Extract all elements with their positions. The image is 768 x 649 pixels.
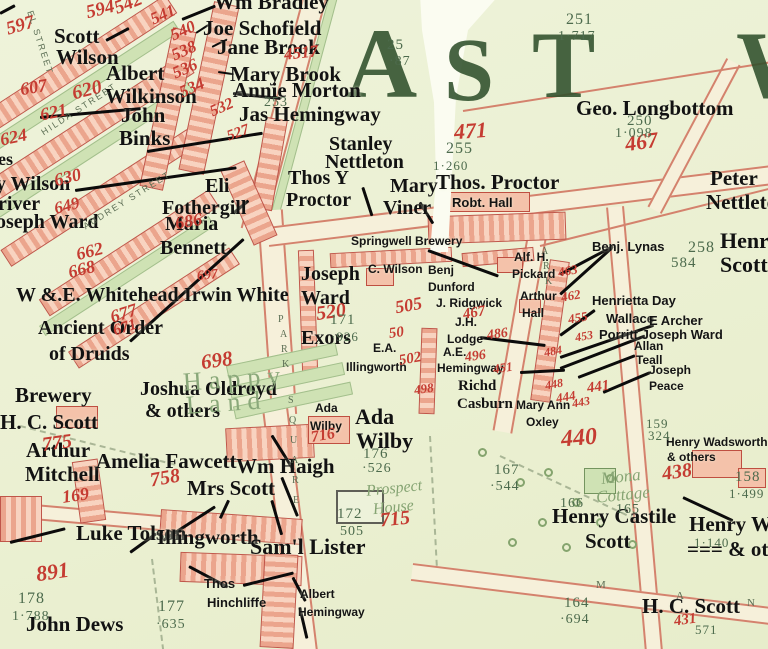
owner-annotation: Wm Haigh: [236, 456, 335, 477]
parcel-number-green: 1·788: [12, 610, 50, 624]
road-name-letter: Q: [289, 416, 296, 426]
parcel-number-green: 177: [158, 599, 185, 615]
owner-annotation: Geo. Longbottom: [576, 98, 734, 119]
road-name-letter: E: [293, 496, 299, 506]
terrace-block: [419, 328, 438, 415]
parcel-number-green: ·635: [156, 618, 186, 632]
parcel-number-green: ·544: [490, 480, 520, 494]
road-name-letter: A: [541, 247, 548, 257]
owner-annotation: es: [0, 150, 13, 168]
parcel-number-red: 607: [19, 76, 49, 98]
owner-annotation: Binks: [119, 128, 170, 149]
owner-annotation-small: Illingworth: [346, 361, 407, 373]
owner-annotation-small: Thos: [204, 577, 235, 590]
owner-annotation-small: C. Wilson: [368, 263, 423, 275]
parcel-number-green: 158: [735, 470, 761, 485]
parcel-number-red: 50: [388, 325, 405, 342]
owner-annotation: Scott: [720, 254, 768, 276]
owner-annotation: Eli: [205, 176, 229, 196]
parcel-number-green: 166: [560, 497, 584, 511]
road-name-letter: M: [596, 580, 606, 591]
parcel-number-red: 775: [41, 431, 73, 455]
parcel-number-green: 584: [671, 256, 697, 271]
owner-annotation-small: Henrietta Day: [592, 294, 676, 307]
owner-annotation: Wm Bradley: [214, 0, 329, 13]
owner-annotation: Mrs Scott: [187, 478, 275, 499]
parcel-number-green: 505: [340, 525, 364, 539]
parcel-number-green: ·694: [560, 613, 590, 627]
road-name-letter: U: [290, 436, 297, 446]
owner-annotation: Albert: [106, 63, 164, 84]
parcel-number-red: 451: [492, 360, 513, 376]
field-boundary-dashed: [429, 436, 438, 566]
tree-symbol: [478, 448, 487, 457]
road-name-letter: R: [281, 345, 288, 355]
historical-map-canvas: ASTW Wm BradleyJoe SchofieldJane BrookSc…: [0, 0, 768, 649]
parcel-number-red: 505: [394, 294, 424, 316]
tree-symbol: [562, 543, 571, 552]
owner-annotation: Henry Wa: [689, 514, 768, 535]
leader-line: [362, 187, 374, 216]
owner-annotation: Ancient Order: [38, 318, 163, 338]
parcel-number-red: 502: [398, 350, 423, 369]
parcel-number-green: 1·140: [694, 536, 729, 549]
road-name-letter: R: [292, 476, 299, 486]
road-name-letter: A: [291, 456, 298, 466]
owner-annotation-small: A.E.: [443, 346, 466, 358]
parcel-number-red: 463: [557, 262, 578, 278]
owner-annotation: John: [121, 105, 165, 126]
owner-annotation-small: Albert: [300, 588, 335, 600]
parcel-number-red: 686: [174, 210, 204, 232]
sheet-letter: W: [736, 18, 768, 113]
owner-annotation-small: Arthur: [520, 290, 557, 302]
parcel-number-green: 255: [446, 141, 473, 157]
owner-annotation-small: Robt. Hall: [452, 196, 513, 209]
owner-annotation: Henry: [720, 230, 768, 252]
parcel-number-green: 1·499: [729, 487, 764, 500]
parcel-number-green: 178: [18, 591, 45, 607]
owner-annotation: Irwin White: [184, 285, 289, 305]
owner-annotation: Scott: [585, 531, 631, 552]
parcel-number-red: 496: [464, 349, 487, 366]
parcel-number-red: 467: [462, 304, 487, 323]
tree-symbol: [538, 518, 547, 527]
parcel-number-green: 25: [387, 38, 404, 53]
owner-annotation: Ada: [355, 406, 394, 428]
parcel-number-green: 571: [695, 623, 718, 636]
owner-annotation-small: Dunford: [428, 281, 475, 293]
parcel-number-green: 176: [363, 447, 389, 462]
road-name-letter: S: [288, 396, 294, 406]
owner-annotation: Thos. Proctor: [436, 172, 559, 193]
parcel-number-green: 164: [564, 596, 590, 611]
parcel-number-red: 527: [225, 123, 251, 145]
owner-annotation: Illingworth: [157, 527, 259, 548]
parcel-number-red: 169: [61, 484, 90, 506]
owner-annotation-small: Hinchliffe: [207, 596, 266, 609]
parcel-number-green: 1·260: [433, 159, 468, 172]
parcel-number-green: ·526: [362, 462, 392, 476]
owner-annotation-small: E Archer: [649, 314, 703, 327]
owner-annotation-small: Hall: [522, 307, 544, 319]
owner-annotation: Mary: [390, 176, 438, 196]
road-name-letter: R: [543, 262, 550, 272]
owner-annotation: Mitchell: [25, 464, 100, 485]
parcel-number-red: 438: [661, 460, 693, 484]
owner-annotation-small: Henry Wadsworth: [666, 436, 768, 448]
parcel-number-red: 630: [52, 165, 83, 189]
owner-annotation: Brewery: [15, 385, 92, 406]
owner-annotation-small: Oxley: [526, 416, 559, 428]
owner-annotation: Annie Morton: [233, 80, 361, 101]
owner-annotation-small: Peace: [649, 380, 684, 392]
place-name: Prospect: [365, 478, 423, 500]
owner-annotation: Joseph: [301, 264, 360, 284]
parcel-number-red: 697: [196, 268, 218, 284]
parcel-number-red: 484: [543, 344, 563, 359]
tree-symbol: [544, 468, 553, 477]
owner-annotation: Proctor: [286, 190, 351, 210]
owner-annotation-small: E.A.: [373, 342, 396, 354]
owner-annotation: W &.E. Whitehead: [16, 285, 179, 305]
owner-annotation: Nettleton: [706, 192, 768, 213]
parcel-number-red: 624: [0, 125, 29, 148]
parcel-number-red: 891: [35, 559, 71, 585]
parcel-number-red: 594: [84, 0, 116, 22]
owner-annotation-small: Ada: [315, 402, 338, 414]
parcel-number-green: 172: [337, 507, 363, 522]
road-name-letter: N: [747, 598, 755, 609]
owner-annotation: Casburn: [457, 397, 513, 412]
parcel-number-green: 253: [264, 96, 288, 110]
parcel-number-red: 431: [673, 612, 697, 630]
parcel-number-red: 4517: [283, 42, 319, 62]
owner-annotation-small: Benj. Lynas: [592, 240, 664, 253]
parcel-number-green: 324: [648, 429, 671, 442]
owner-annotation: H. C. Scott: [0, 412, 98, 433]
owner-annotation: of Druids: [49, 344, 130, 364]
owner-annotation: Jas Hemingway: [239, 104, 381, 125]
parcel-number-green: 171: [330, 313, 356, 328]
owner-annotation-small: Wallace: [606, 312, 654, 325]
owner-annotation: Richd: [458, 379, 496, 394]
leader-line: [0, 4, 16, 15]
parcel-number-green: 167: [494, 463, 520, 478]
road-name-letter: P: [278, 315, 284, 325]
parcel-number-red: 486: [486, 327, 509, 344]
parcel-number-red: 440: [560, 424, 598, 451]
parcel-number-green: ·87: [389, 55, 411, 69]
owner-annotation-small: Joseph: [649, 364, 691, 376]
owner-annotation-small: Springwell Brewery: [351, 235, 462, 247]
road-name-letter: K: [545, 277, 552, 287]
owner-annotation: Bennett: [160, 238, 227, 258]
parcel-number-red: 443: [571, 395, 591, 410]
owner-annotation-small: Benj: [428, 264, 454, 276]
owner-annotation: Scott: [54, 26, 100, 47]
parcel-number-red: 758: [148, 466, 181, 491]
sheet-letter: S: [444, 26, 494, 116]
parcel-number-green: 258: [688, 240, 715, 256]
parcel-number-green: 251: [566, 12, 593, 28]
owner-annotation: Thos Y: [288, 168, 349, 188]
owner-annotation: Sam'l Lister: [250, 536, 366, 558]
road-name-letter: A: [676, 591, 684, 602]
tree-symbol: [508, 538, 517, 547]
owner-annotation-small: Allan: [634, 340, 663, 352]
owner-annotation-small: Hemingway: [298, 606, 365, 618]
parcel-number-green: ·926: [331, 330, 359, 343]
owner-annotation: Viner: [383, 198, 431, 218]
parcel-number-red: 441: [586, 379, 610, 397]
parcel-number-red: 453: [574, 329, 594, 344]
owner-annotation-small: Lodge: [447, 333, 483, 345]
parcel-number-red: 455: [567, 309, 588, 325]
parcel-number-red: 498: [413, 381, 434, 397]
place-name: Land: [185, 387, 268, 419]
parcel-number-green: 165: [616, 503, 640, 517]
parcel-number-red: 462: [560, 287, 581, 303]
street-name: EL STREET: [25, 9, 55, 76]
road-name-letter: A: [280, 330, 287, 340]
parcel-number-green: 1·098: [615, 127, 653, 141]
owner-annotation: Peter: [710, 168, 758, 189]
parcel-number-green: 1·717: [558, 30, 596, 44]
